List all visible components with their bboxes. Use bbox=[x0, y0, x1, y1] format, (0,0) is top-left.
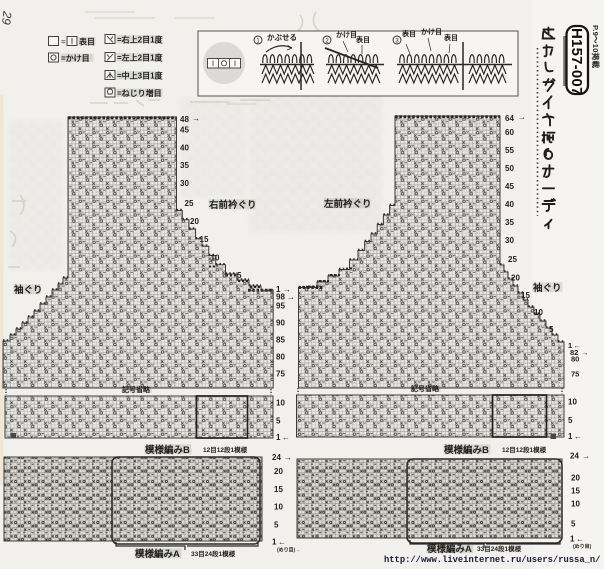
svg-text:24: 24 bbox=[272, 453, 281, 462]
svg-text:表目: 表目 bbox=[78, 37, 95, 47]
svg-text:http://www.liveinternet.ru/use: http://www.liveinternet.ru/users/russa_n… bbox=[384, 555, 600, 565]
svg-text:左前衿ぐり: 左前衿ぐり bbox=[323, 198, 372, 210]
svg-text:→: → bbox=[192, 114, 200, 123]
svg-text:(めり目): (めり目) bbox=[573, 543, 592, 550]
svg-text:10: 10 bbox=[211, 254, 220, 263]
svg-text:10: 10 bbox=[571, 500, 580, 509]
svg-text:15: 15 bbox=[521, 291, 530, 300]
svg-text:(めり目)→: (めり目)→ bbox=[277, 547, 300, 554]
svg-text:右前衿ぐり: 右前衿ぐり bbox=[208, 199, 257, 211]
svg-text:←: ← bbox=[574, 432, 582, 441]
svg-text:30: 30 bbox=[180, 179, 189, 188]
svg-text:5: 5 bbox=[237, 271, 242, 280]
svg-text:40: 40 bbox=[505, 200, 514, 209]
svg-text:20: 20 bbox=[274, 467, 283, 476]
svg-text:=左上2目1度: =左上2目1度 bbox=[117, 53, 164, 63]
svg-text:20: 20 bbox=[511, 274, 520, 283]
svg-text:12目12段1模様: 12目12段1模様 bbox=[203, 445, 248, 454]
svg-text:1: 1 bbox=[568, 432, 573, 441]
svg-text:→: → bbox=[287, 293, 295, 302]
svg-text:50: 50 bbox=[505, 164, 514, 173]
svg-text:33目24段1模様: 33目24段1模様 bbox=[477, 544, 522, 553]
svg-text:=: = bbox=[61, 38, 66, 47]
svg-text:かけ目: かけ目 bbox=[336, 31, 357, 39]
svg-text:20: 20 bbox=[571, 474, 580, 483]
svg-text:5: 5 bbox=[276, 417, 281, 426]
svg-text:5: 5 bbox=[571, 520, 576, 529]
svg-text:10: 10 bbox=[534, 308, 543, 317]
svg-text:45: 45 bbox=[505, 182, 514, 191]
svg-text:模様編みB: 模様編みB bbox=[444, 444, 489, 456]
svg-text:表目: 表目 bbox=[401, 29, 416, 38]
svg-text:75: 75 bbox=[276, 370, 285, 379]
svg-text:12目12段1模様: 12目12段1模様 bbox=[502, 445, 547, 454]
svg-text:24: 24 bbox=[570, 452, 579, 461]
svg-text:33目24段1模様: 33目24段1模様 bbox=[191, 549, 236, 558]
svg-text:85: 85 bbox=[276, 336, 285, 345]
svg-text:40: 40 bbox=[180, 144, 189, 153]
svg-text:1: 1 bbox=[570, 535, 575, 544]
svg-text:64: 64 bbox=[505, 114, 514, 123]
svg-text:5: 5 bbox=[549, 325, 554, 334]
svg-text:5: 5 bbox=[274, 521, 279, 530]
svg-text:模様編みA: 模様編みA bbox=[427, 543, 472, 555]
svg-text:袖ぐり: 袖ぐり bbox=[13, 284, 43, 296]
svg-text:←: ← bbox=[278, 538, 286, 547]
svg-text:→: → bbox=[284, 453, 292, 462]
svg-text:55: 55 bbox=[505, 146, 514, 155]
svg-text:表目: 表目 bbox=[443, 33, 458, 42]
svg-text:→: → bbox=[518, 113, 526, 122]
svg-text:←: ← bbox=[576, 535, 584, 544]
svg-text:80: 80 bbox=[276, 353, 285, 362]
svg-text:95: 95 bbox=[276, 302, 285, 311]
svg-text:10: 10 bbox=[568, 398, 577, 407]
svg-text:75: 75 bbox=[571, 370, 579, 379]
svg-text:15: 15 bbox=[200, 235, 209, 244]
svg-text:98: 98 bbox=[276, 293, 285, 302]
svg-text:30: 30 bbox=[505, 236, 514, 245]
svg-text:35: 35 bbox=[505, 218, 514, 227]
svg-text:→: → bbox=[582, 452, 590, 461]
svg-text:表目: 表目 bbox=[355, 35, 370, 44]
svg-text:かけ目: かけ目 bbox=[421, 28, 442, 36]
svg-text:15: 15 bbox=[571, 487, 580, 496]
svg-text:10: 10 bbox=[274, 503, 283, 512]
svg-text:1: 1 bbox=[276, 433, 281, 442]
svg-text:5: 5 bbox=[568, 416, 573, 425]
svg-text:→: → bbox=[581, 348, 589, 357]
svg-text:60: 60 bbox=[505, 128, 514, 137]
svg-text:←: ← bbox=[282, 433, 290, 442]
svg-text:48: 48 bbox=[180, 115, 189, 124]
svg-text:25: 25 bbox=[185, 199, 194, 208]
svg-text:記号省略: 記号省略 bbox=[122, 385, 151, 394]
svg-text:25: 25 bbox=[508, 255, 517, 264]
svg-text:=ねじり増目: =ねじり増目 bbox=[117, 88, 162, 98]
svg-text:10: 10 bbox=[276, 399, 285, 408]
svg-text:15: 15 bbox=[274, 485, 283, 494]
svg-text:記号省略: 記号省略 bbox=[411, 384, 440, 393]
svg-text:かぶせる: かぶせる bbox=[267, 33, 297, 42]
svg-text:=かけ目: =かけ目 bbox=[61, 54, 90, 63]
svg-text:模様編みA: 模様編みA bbox=[135, 548, 180, 560]
svg-text:35: 35 bbox=[180, 161, 189, 170]
svg-text:1: 1 bbox=[272, 538, 277, 547]
svg-text:=中上3目1度: =中上3目1度 bbox=[117, 71, 164, 81]
svg-text:袖ぐり: 袖ぐり bbox=[532, 282, 562, 294]
svg-text:80: 80 bbox=[571, 355, 579, 364]
svg-text:20: 20 bbox=[190, 217, 199, 226]
svg-text:模様編みB: 模様編みB bbox=[145, 444, 190, 456]
svg-text:=右上2目1度: =右上2目1度 bbox=[117, 35, 164, 45]
svg-text:90: 90 bbox=[276, 319, 285, 328]
svg-text:45: 45 bbox=[180, 126, 189, 135]
